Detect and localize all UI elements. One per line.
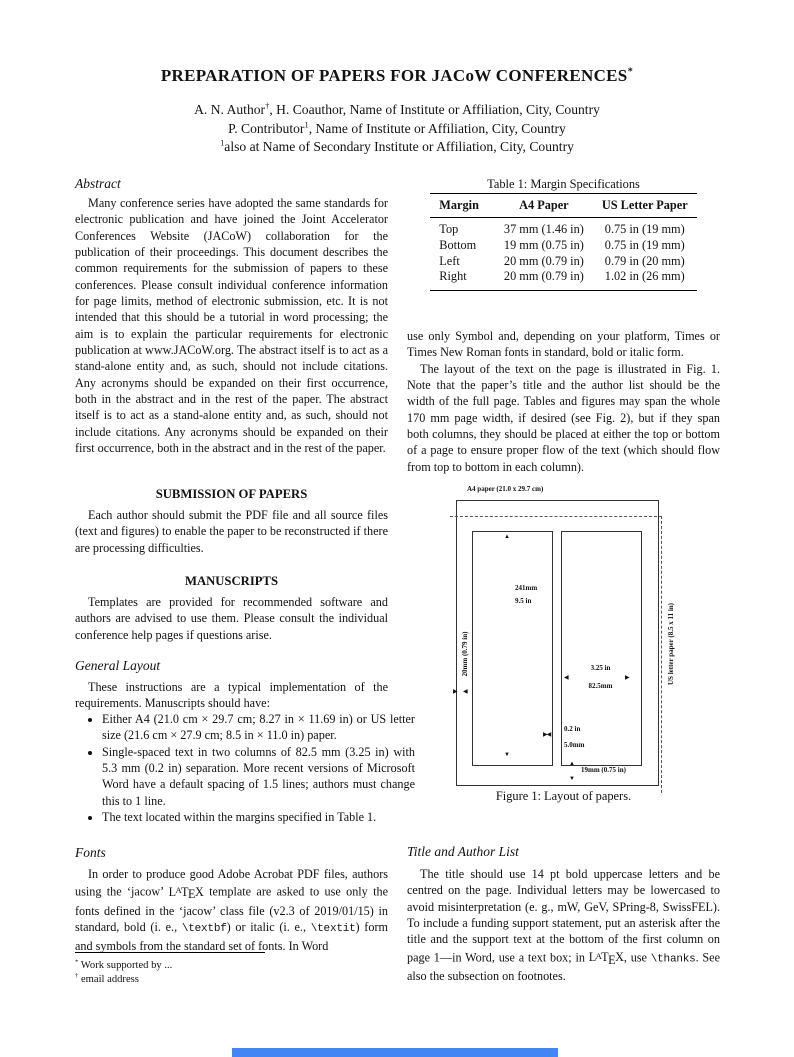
- arrow-up-icon: [569, 761, 575, 767]
- bullet-item: The text located within the margins spec…: [102, 809, 415, 825]
- funding-asterisk: *: [628, 66, 634, 77]
- column-width-in-label: 3.25 in: [561, 664, 640, 672]
- left-margin-label: 20mm (0.79 in): [461, 609, 469, 699]
- submission-text: Each author should submit the PDF file a…: [75, 507, 388, 556]
- fonts-text: In order to produce good Adobe Acrobat P…: [75, 866, 388, 954]
- arrow-right-icon: [625, 675, 630, 681]
- margin-table-wrap: Margin A4 Paper US Letter Paper Top 37 m…: [407, 193, 720, 291]
- figure-1: A4 paper (21.0 x 29.7 cm) 241mm 9.5 in 2…: [407, 484, 720, 784]
- abstract-text: Many conference series have adopted the …: [75, 195, 388, 457]
- figure-caption: Figure 1: Layout of papers.: [407, 788, 720, 804]
- author-line: P. Contributor1, Name of Institute or Af…: [0, 120, 794, 139]
- arrow-down-icon: [504, 752, 510, 758]
- gap-in-label: 0.2 in: [564, 725, 580, 733]
- fonts-continued: use only Symbol and, depending on your p…: [407, 328, 720, 475]
- bottom-progress-bar[interactable]: [232, 1048, 558, 1057]
- footnote-email: † email address: [75, 973, 388, 987]
- footnotes: * Work supported by ... † email address: [75, 959, 388, 987]
- col-header: US Letter Paper: [593, 194, 697, 218]
- gap-mm-label: 5.0mm: [564, 741, 584, 749]
- author-line: A. N. Author†, H. Coauthor, Name of Inst…: [0, 101, 794, 120]
- col-header: Margin: [430, 194, 495, 218]
- title-author-heading: Title and Author List: [407, 844, 720, 860]
- manuscripts-text: Templates are provided for recommended s…: [75, 594, 388, 643]
- general-layout-intro: These instructions are a typical impleme…: [75, 679, 388, 712]
- left-text-column-box: [472, 531, 553, 766]
- table-row: Top 37 mm (1.46 in) 0.75 in (19 mm): [430, 218, 696, 238]
- arrow-up-icon: [504, 534, 510, 540]
- margin-table: Margin A4 Paper US Letter Paper Top 37 m…: [430, 193, 696, 291]
- bullet-item: Either A4 (21.0 cm × 29.7 cm; 8.27 in × …: [102, 711, 415, 744]
- abstract-heading: Abstract: [75, 176, 388, 192]
- paper-title-text: PREPARATION OF PAPERS FOR JACoW CONFEREN…: [161, 66, 628, 85]
- us-letter-label: US letter paper (8.5 x 11 in): [667, 584, 675, 704]
- table-row: Left 20 mm (0.79 in) 0.79 in (20 mm): [430, 254, 696, 270]
- table-header-row: Margin A4 Paper US Letter Paper: [430, 194, 696, 218]
- table-row: Bottom 19 mm (0.75 in) 0.75 in (19 mm): [430, 238, 696, 254]
- paper-page: PREPARATION OF PAPERS FOR JACoW CONFEREN…: [0, 0, 794, 1057]
- arrow-down-icon: [569, 776, 575, 782]
- arrow-left-icon: [564, 675, 569, 681]
- gap-arrows-icon: [543, 732, 550, 738]
- bullet-item: Single-spaced text in two columns of 82.…: [102, 744, 415, 809]
- author-list: A. N. Author†, H. Coauthor, Name of Inst…: [0, 101, 794, 157]
- us-letter-top-edge: [450, 516, 662, 517]
- table-row: Right 20 mm (0.79 in) 1.02 in (26 mm): [430, 269, 696, 290]
- layout-text: The layout of the text on the page is il…: [407, 361, 720, 475]
- title-author-text: The title should use 14 pt bold uppercas…: [407, 866, 720, 985]
- footnote-rule: [75, 952, 265, 953]
- bottom-margin-label: 19mm (0.75 in): [581, 766, 626, 774]
- general-layout-bullets: Either A4 (21.0 cm × 29.7 cm; 8.27 in × …: [75, 711, 415, 825]
- arrow-right-icon: [453, 689, 458, 695]
- paper-title: PREPARATION OF PAPERS FOR JACoW CONFEREN…: [0, 66, 794, 86]
- column-height-mm-label: 241mm: [515, 584, 537, 592]
- fonts-heading: Fonts: [75, 845, 388, 861]
- general-layout-heading: General Layout: [75, 658, 388, 674]
- footnote-funding: * Work supported by ...: [75, 959, 388, 973]
- table-caption: Table 1: Margin Specifications: [407, 176, 720, 192]
- fonts-continued-text: use only Symbol and, depending on your p…: [407, 328, 720, 361]
- submission-heading: SUBMISSION OF PAPERS: [75, 486, 388, 502]
- a4-paper-label: A4 paper (21.0 x 29.7 cm): [467, 485, 543, 493]
- column-width-mm-label: 82.5mm: [561, 682, 640, 690]
- author-line: 1also at Name of Secondary Institute or …: [0, 138, 794, 157]
- manuscripts-heading: MANUSCRIPTS: [75, 573, 388, 589]
- column-height-in-label: 9.5 in: [515, 597, 531, 605]
- us-letter-right-edge: [661, 516, 662, 793]
- col-header: A4 Paper: [495, 194, 593, 218]
